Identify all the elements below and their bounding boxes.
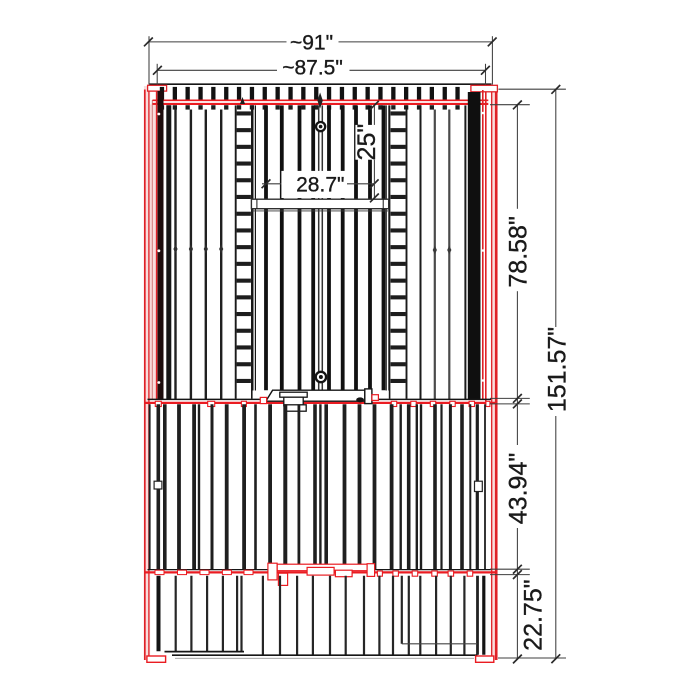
svg-text:22.75": 22.75" [520, 579, 548, 650]
svg-text:43.94": 43.94" [505, 453, 533, 524]
svg-text:78.58": 78.58" [505, 216, 533, 287]
svg-text:28.7": 28.7" [296, 173, 344, 196]
svg-text:151.57": 151.57" [544, 327, 572, 412]
svg-text:~91": ~91" [290, 31, 333, 54]
svg-text:25": 25" [353, 124, 381, 161]
svg-text:~87.5": ~87.5" [282, 57, 343, 80]
